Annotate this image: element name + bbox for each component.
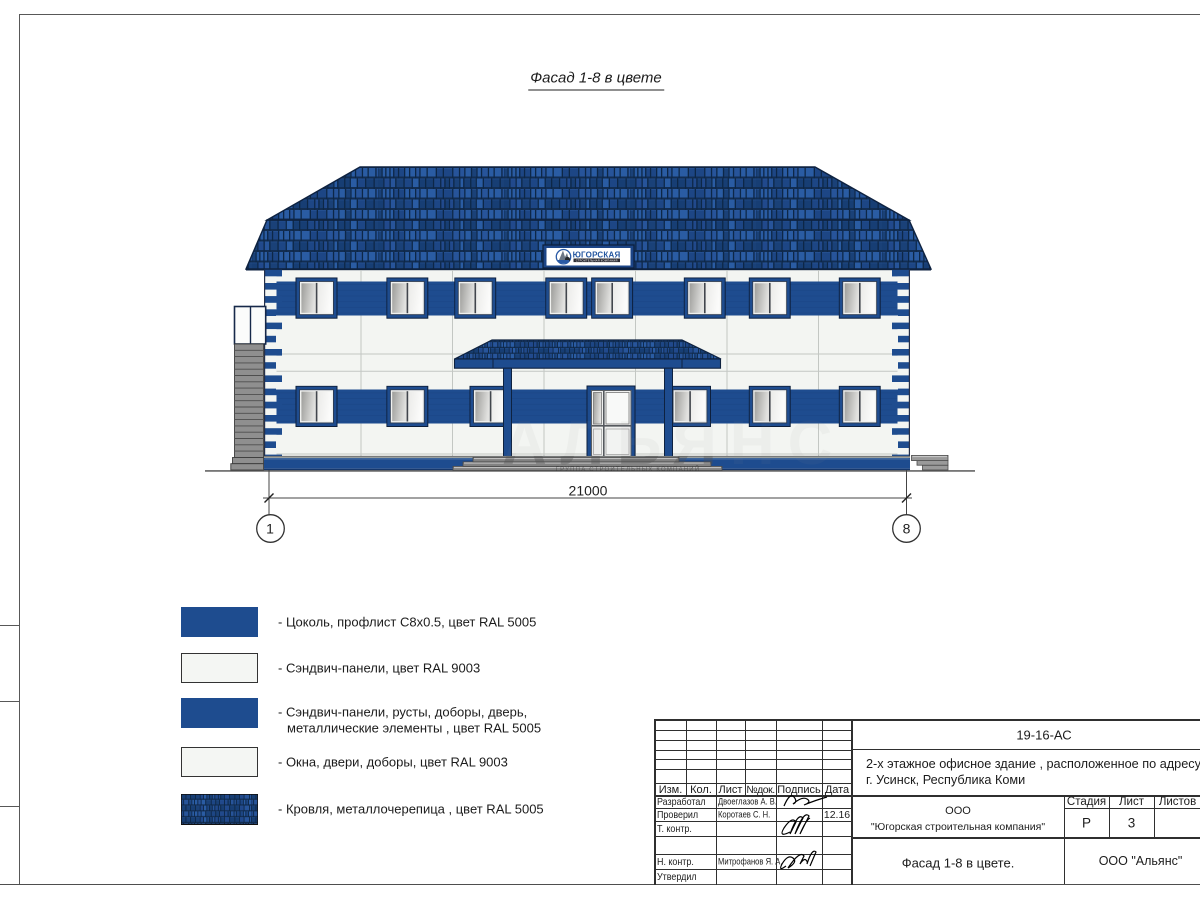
svg-text:СТРОИТЕЛЬНАЯ КОМПАНИЯ: СТРОИТЕЛЬНАЯ КОМПАНИЯ xyxy=(576,258,618,262)
svg-text:ЮГОРСКАЯ: ЮГОРСКАЯ xyxy=(573,250,621,259)
svg-text:ГРУППА СТРОИТЕЛЬНЫХ КОМПАНИЙ: ГРУППА СТРОИТЕЛЬНЫХ КОМПАНИЙ xyxy=(556,465,701,473)
svg-text:1: 1 xyxy=(266,521,274,537)
svg-text:8: 8 xyxy=(903,521,911,537)
svg-text:21000: 21000 xyxy=(569,483,608,499)
